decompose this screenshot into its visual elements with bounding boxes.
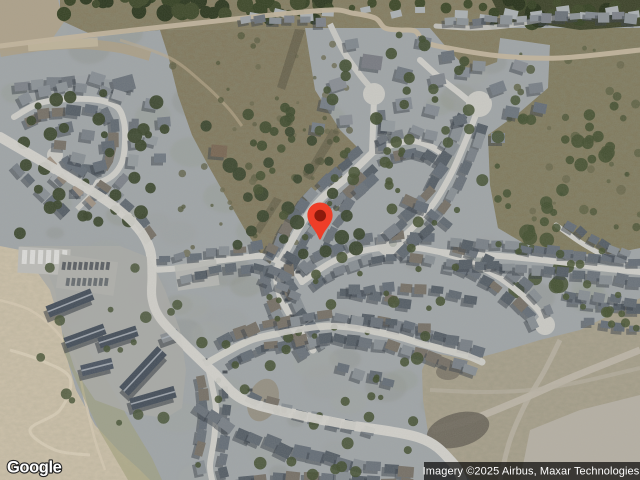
svg-text:Imagery ©2025 Airbus, Maxar Te: Imagery ©2025 Airbus, Maxar Technologies [423, 466, 640, 478]
svg-text:Google: Google [7, 459, 62, 477]
